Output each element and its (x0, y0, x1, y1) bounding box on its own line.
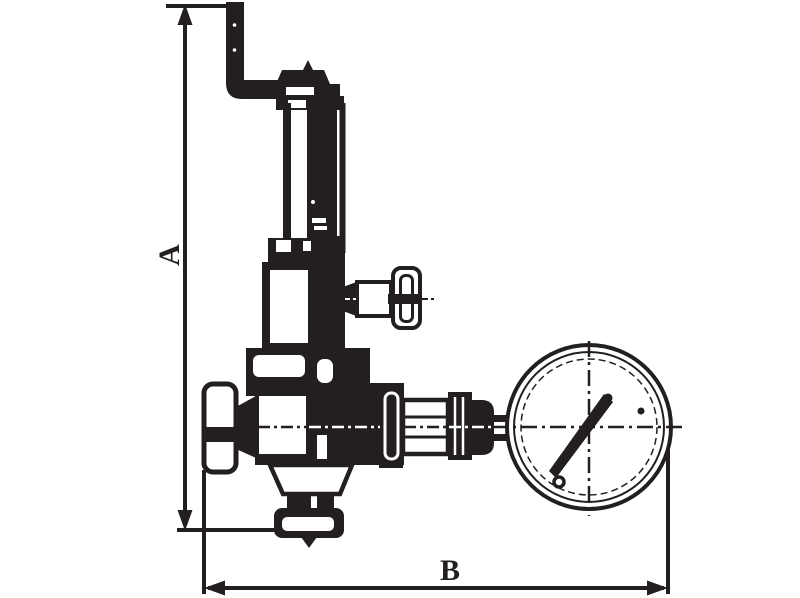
drawing-canvas: A B (0, 0, 800, 598)
dimension-b-arrow-left (204, 581, 225, 596)
bonnet-right-wall (340, 103, 346, 253)
base-flange-face (282, 517, 334, 531)
cap-band-1-face (286, 87, 314, 95)
body-top-slot (317, 359, 333, 383)
collar-slot (276, 240, 291, 252)
valve-technical-drawing: A B (0, 0, 800, 598)
body-lower-taper (270, 465, 352, 494)
spring-highlight-dot (311, 200, 315, 204)
handwheel-hub (202, 427, 238, 442)
bonnet-stem-column (315, 236, 345, 352)
spring-coil-tick (312, 218, 326, 223)
body-top-flange-face (253, 355, 305, 377)
spring-bonnet (262, 103, 346, 352)
gauge-cock-spindle (388, 294, 421, 304)
spring-coil-tick (314, 226, 327, 230)
collar-slot (303, 241, 311, 251)
lever-highlight-dot (233, 48, 237, 52)
needle-tip-cap (604, 394, 613, 403)
body-front-face (259, 396, 306, 454)
dimension-a-arrow-down (178, 510, 193, 531)
bonnet-spring-column (307, 103, 337, 255)
stem-knob (303, 60, 313, 70)
bonnet-left-wall (283, 103, 291, 253)
valve-body (202, 348, 404, 548)
dimension-a-label: A (153, 244, 186, 266)
needle-pivot-ring (554, 477, 564, 487)
cap-nut (276, 70, 330, 84)
body-mid-slot (317, 435, 327, 459)
lever-highlight-dot (233, 23, 237, 27)
lower-spring-housing-face (270, 270, 308, 343)
gauge-cock (343, 268, 434, 328)
stem-cap (276, 60, 344, 110)
gauge-cock-block (357, 282, 391, 316)
dial-screw-dot (638, 408, 645, 415)
dimension-b-arrow-right (647, 581, 668, 596)
handwheel-cone (236, 396, 256, 458)
dimension-b-label: B (440, 554, 460, 587)
base-outlet-tip (301, 537, 317, 548)
